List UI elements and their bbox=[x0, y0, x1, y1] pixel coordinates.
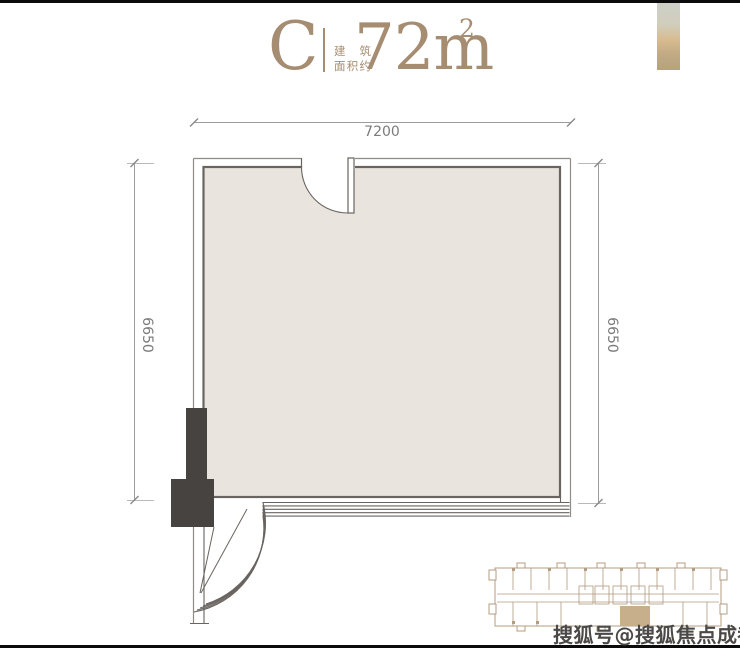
watermark-text: 搜狐号@搜狐焦点成都站 bbox=[553, 619, 740, 648]
floor-plan-drawing bbox=[0, 0, 740, 648]
room-interior bbox=[204, 167, 561, 497]
